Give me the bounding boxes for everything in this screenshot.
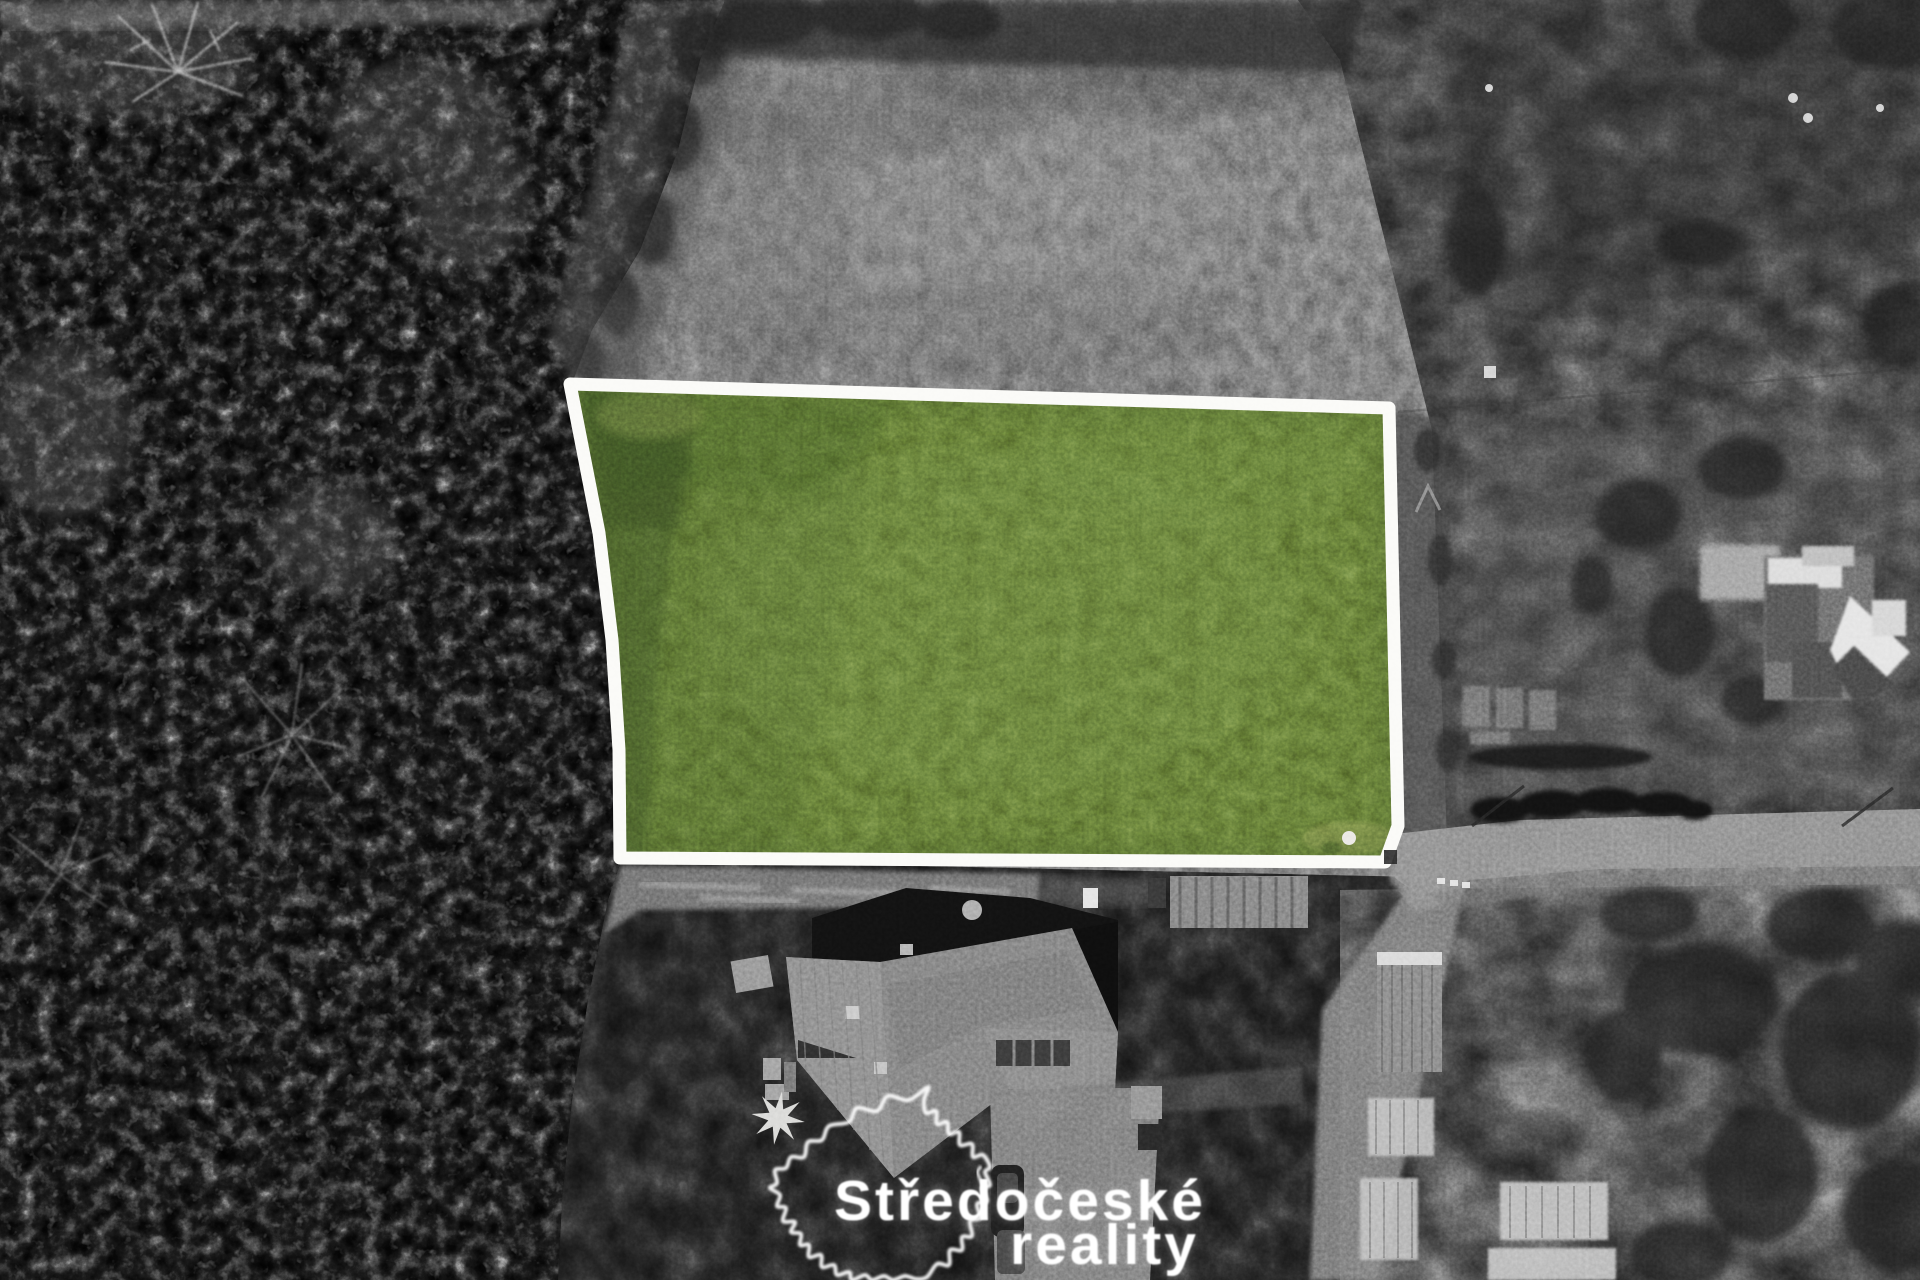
svg-text:reality: reality	[1010, 1213, 1199, 1277]
